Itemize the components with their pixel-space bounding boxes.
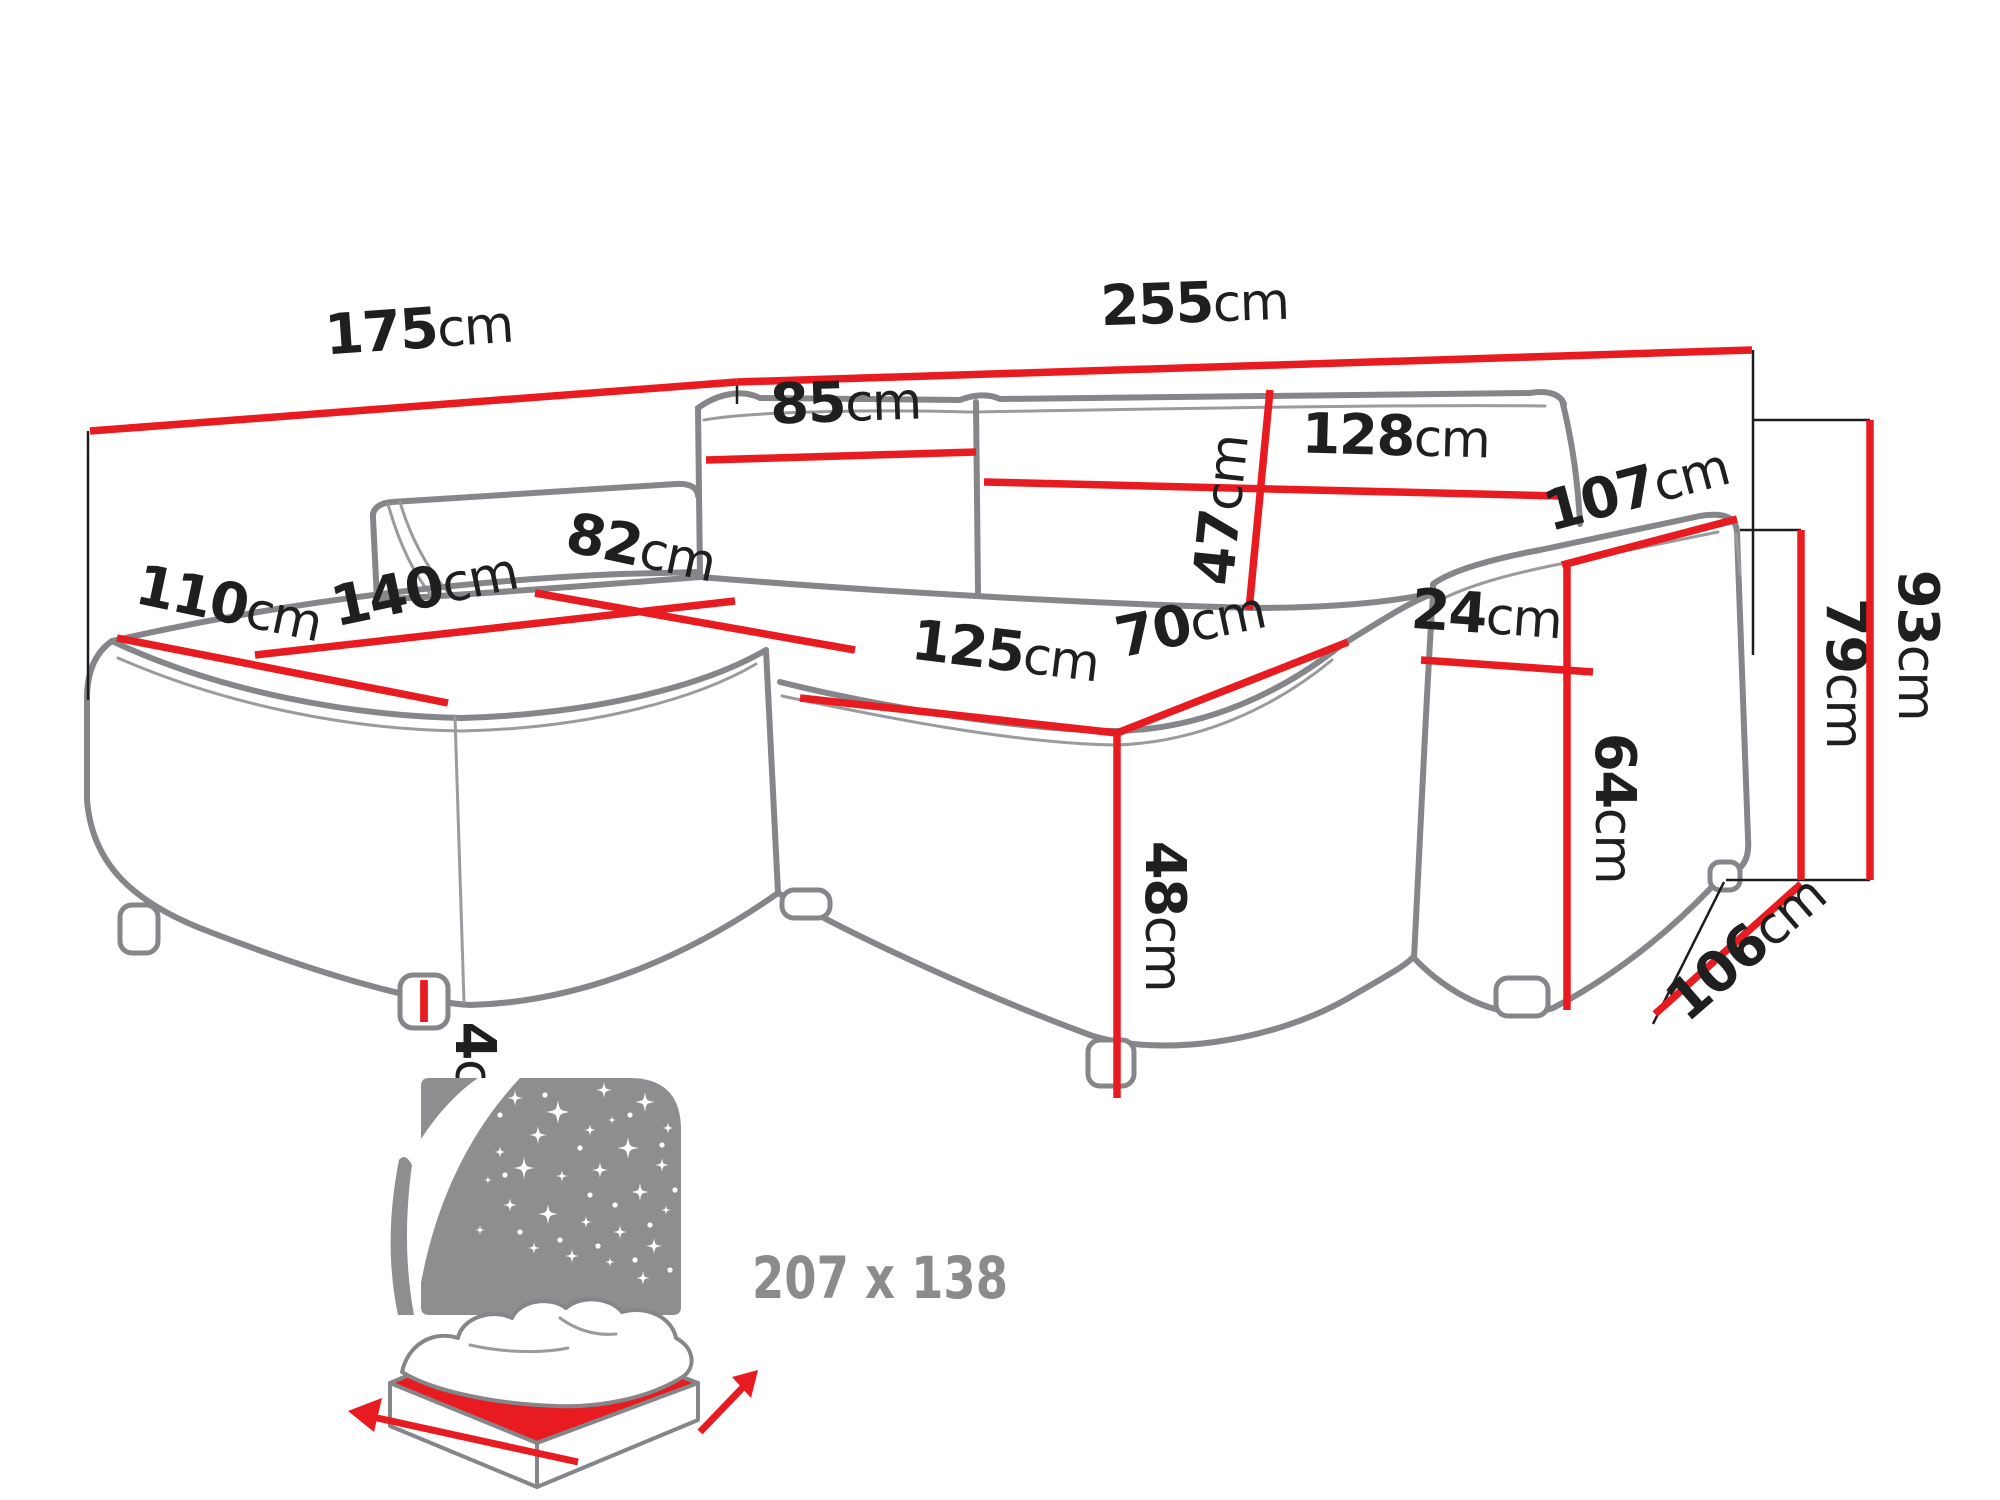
- star-dot: [612, 1202, 617, 1207]
- sofa-foot: [1710, 862, 1740, 890]
- dimension-backrest-cushion-height: 47cm: [1181, 390, 1270, 610]
- star-dot: [672, 1187, 677, 1192]
- dimension-left-side-width: 175cm: [90, 291, 737, 431]
- dimension-label: 110cm: [130, 553, 327, 656]
- dimension-label: 175cm: [323, 291, 515, 369]
- dimension-right-backrest-cushion: 128cm: [984, 402, 1560, 496]
- sleeping-area-size: 207 x 138: [752, 1244, 1008, 1312]
- star-dot: [557, 1237, 562, 1242]
- dimension-label: 64cm: [1582, 733, 1647, 883]
- dimension-label: 128cm: [1301, 402, 1491, 472]
- dimension-line: [984, 482, 1560, 496]
- star-dot: [659, 1142, 664, 1147]
- dimension-seat-front-width: 125cm: [800, 608, 1117, 733]
- sofa-foot: [1496, 978, 1548, 1016]
- sofa-foot: [782, 890, 830, 918]
- dimension-label: 48cm: [1132, 841, 1197, 991]
- star-dot: [577, 1145, 582, 1150]
- dimension-label: 85cm: [769, 367, 922, 437]
- sofa-dimension-drawing: 175cm255cm85cm128cm47cm107cm24cm64cm79cm…: [0, 0, 2000, 1500]
- dimension-total-height: 93cm: [1870, 420, 1950, 880]
- star-dot: [517, 1229, 522, 1234]
- star-dot: [502, 1172, 507, 1177]
- star-dot: [587, 1192, 592, 1197]
- dimension-front-width: 255cm: [737, 268, 1752, 382]
- dimension-line: [706, 452, 976, 460]
- dimension-line: [255, 601, 735, 655]
- star-dot: [627, 1112, 632, 1117]
- star-dot: [647, 1222, 652, 1227]
- sofa-foot: [120, 905, 158, 953]
- sofa-foot: [1088, 1040, 1134, 1086]
- star-dot: [632, 1257, 637, 1262]
- star-dot: [667, 1267, 672, 1272]
- dimension-label: 70cm: [1110, 576, 1271, 671]
- dimension-label: 93cm: [1885, 570, 1950, 720]
- sofa-bed-icon: [348, 1078, 758, 1487]
- dimension-line: [117, 638, 448, 703]
- dimension-line: [800, 698, 1117, 733]
- star-dot: [595, 1243, 600, 1248]
- star-dot: [542, 1092, 547, 1097]
- dimension-diagram: 175cm255cm85cm128cm47cm107cm24cm64cm79cm…: [0, 0, 2000, 1500]
- duvet-pillows: [402, 1299, 692, 1406]
- star-dot: [497, 1112, 502, 1117]
- dimension-line: [90, 382, 737, 431]
- mattress-icon: [390, 1299, 698, 1487]
- dimension-label: 125cm: [908, 608, 1102, 695]
- dimension-label: 255cm: [1099, 268, 1289, 340]
